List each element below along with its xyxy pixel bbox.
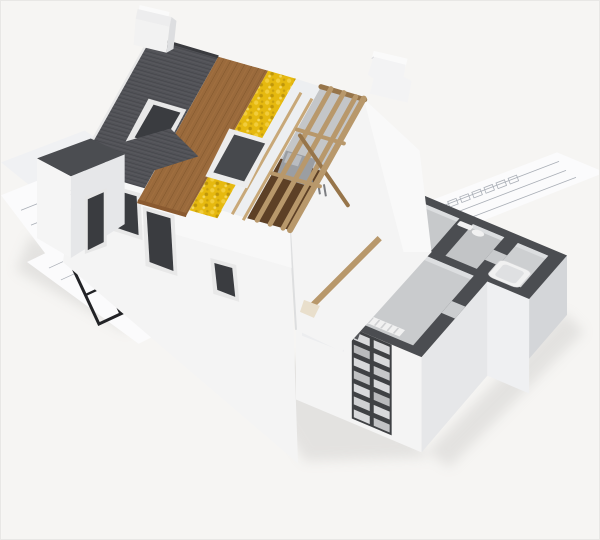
brick-section (352, 328, 392, 436)
exterior-wall-step (487, 281, 529, 394)
window-2 (143, 206, 178, 276)
house-cutaway-illustration (1, 1, 599, 539)
porch-door (88, 192, 104, 250)
architecture-render (0, 0, 600, 540)
